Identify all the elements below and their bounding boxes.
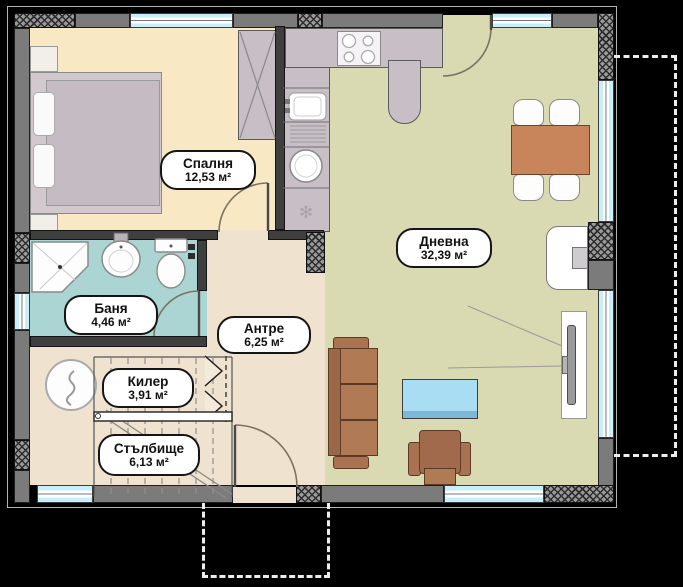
room-area: 12,53 м² xyxy=(185,171,231,184)
dining-chair xyxy=(513,99,544,126)
sofa-cushion xyxy=(340,384,378,420)
room-area: 6,25 м² xyxy=(244,336,284,349)
wall-pillar xyxy=(598,13,614,80)
kitchen-peninsula xyxy=(388,60,421,124)
room-name: Антре xyxy=(244,321,284,336)
wall-segment xyxy=(93,485,233,503)
window xyxy=(37,485,93,503)
armchair-back xyxy=(424,468,456,485)
room-label-closet: Килер 3,91 м² xyxy=(102,368,194,408)
wall-pillar xyxy=(298,13,322,28)
room-area: 3,91 м² xyxy=(128,389,168,402)
water-heater xyxy=(45,359,97,411)
coffee-table-edge xyxy=(403,411,477,418)
window xyxy=(598,290,614,438)
terrace-outline xyxy=(614,55,677,457)
wall-segment xyxy=(552,13,598,28)
sofa-armrest xyxy=(333,456,369,469)
room-name: Стълбище xyxy=(114,441,184,456)
tv-icon xyxy=(567,325,576,405)
wall-pillar xyxy=(14,233,30,263)
room-label-staircase: Стълбище 6,13 м² xyxy=(98,434,200,476)
sofa-cushion xyxy=(340,348,378,384)
wall-segment xyxy=(233,13,298,28)
room-label-living: Дневна 32,39 м² xyxy=(396,228,492,268)
dining-table xyxy=(511,125,590,175)
dining-chair xyxy=(549,174,580,201)
room-area: 6,13 м² xyxy=(129,456,169,469)
room-label-bedroom: Спалня 12,53 м² xyxy=(160,150,256,190)
room-label-bathroom: Баня 4,46 м² xyxy=(64,295,158,335)
hallway-floor xyxy=(207,240,325,485)
bed-mattress xyxy=(46,80,160,206)
room-area: 32,39 м² xyxy=(421,249,467,262)
window xyxy=(14,293,30,330)
wall-segment xyxy=(14,263,30,293)
wall-pillar xyxy=(544,485,614,503)
dining-chair xyxy=(549,99,580,126)
window xyxy=(130,13,233,28)
nightstand xyxy=(30,46,58,72)
window xyxy=(492,13,552,28)
interior-wall xyxy=(275,26,285,230)
wall-pillar xyxy=(14,13,75,28)
wall-segment xyxy=(75,13,130,28)
wall-pillar xyxy=(588,222,614,260)
entrance-doorway-floor xyxy=(233,487,296,503)
wall-segment xyxy=(321,485,444,503)
room-area: 4,46 м² xyxy=(91,316,131,329)
window xyxy=(598,80,614,222)
porch-outline xyxy=(202,503,330,578)
window xyxy=(444,485,544,503)
room-label-hallway: Антре 6,25 м² xyxy=(217,316,311,354)
tv-stand xyxy=(562,356,568,374)
interior-wall xyxy=(197,240,207,291)
fireplace-flue xyxy=(572,247,588,269)
wardrobe xyxy=(238,30,277,140)
interior-wall xyxy=(30,230,218,240)
room-name: Баня xyxy=(94,301,127,316)
wall-segment xyxy=(598,438,614,486)
interior-wall xyxy=(30,336,207,347)
bathroom-doorway-floor xyxy=(197,291,207,336)
room-name: Килер xyxy=(128,374,169,389)
wall-pillar xyxy=(14,440,30,470)
wall-pillar xyxy=(296,485,321,503)
wall-segment xyxy=(14,330,30,440)
sofa-cushion xyxy=(340,420,378,456)
top-doorway-floor xyxy=(443,15,492,28)
wall-pillar xyxy=(306,232,325,273)
room-name: Спалня xyxy=(183,156,233,171)
wall-segment xyxy=(14,470,30,503)
wall-segment xyxy=(14,28,30,233)
wall-segment xyxy=(588,260,614,290)
bed-pillow xyxy=(33,144,55,188)
floor-plan: ✻ xyxy=(0,0,683,587)
stove xyxy=(337,31,381,66)
wall-segment xyxy=(322,13,443,28)
dining-chair xyxy=(513,174,544,201)
room-name: Дневна xyxy=(419,234,468,249)
bed-pillow xyxy=(33,92,55,136)
